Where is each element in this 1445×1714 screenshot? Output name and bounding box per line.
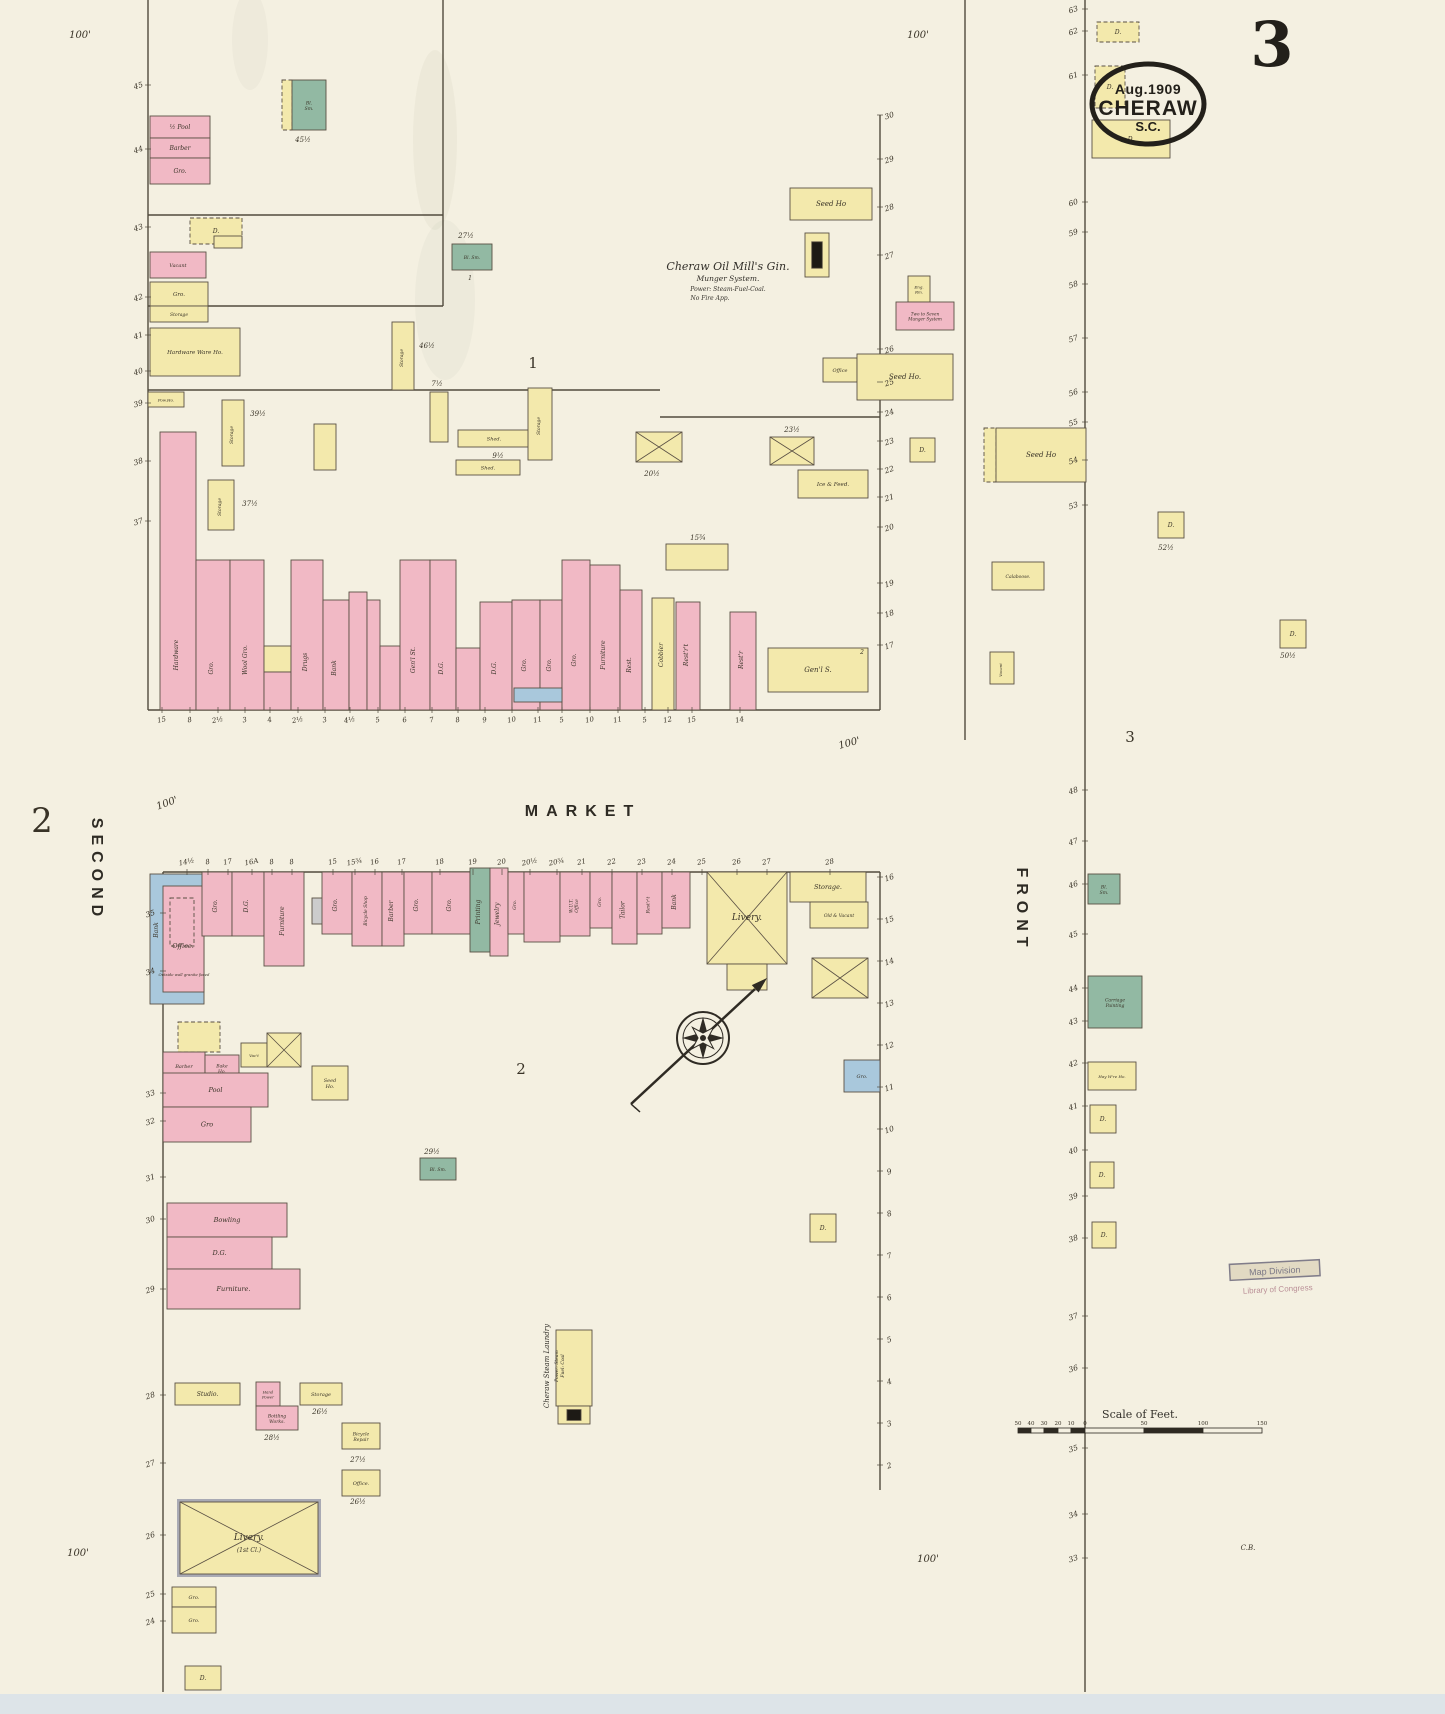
building-label: Gro.	[857, 1074, 868, 1080]
street-number: 17	[396, 857, 407, 867]
street-number: 44	[131, 144, 144, 156]
building	[666, 544, 728, 570]
building: Hardware Ware Ho.	[150, 328, 240, 376]
building: Gro.	[150, 282, 208, 306]
street-number: 12	[883, 1040, 895, 1052]
scale-title: Scale of Feet.	[1102, 1408, 1178, 1421]
street-number: 14	[734, 715, 744, 725]
street-number: 45	[1066, 929, 1079, 941]
street-number: 4	[266, 716, 273, 725]
street-number: 58	[1067, 279, 1079, 291]
building	[770, 437, 814, 465]
street-number: 57	[1067, 333, 1079, 345]
building-label: Bowling	[213, 1216, 241, 1224]
street-number: 28	[143, 1390, 156, 1402]
building: Shed.	[456, 460, 520, 475]
library-stamp: Map Division Library of Congress	[1229, 1260, 1321, 1297]
building-label: SeedHo.	[324, 1078, 337, 1090]
building-label: Cobbler	[658, 642, 665, 667]
building-label: Printing	[475, 899, 482, 925]
building-footprint	[323, 600, 349, 710]
logo-date: Aug.1909	[1115, 81, 1181, 97]
scale-tick-label: 50	[1141, 1421, 1148, 1427]
street-number: 33	[1067, 1553, 1079, 1565]
street-number: 18	[883, 608, 895, 620]
building: Two to SevenMunger System	[896, 302, 954, 330]
building: Gro.	[590, 872, 612, 928]
building: Studio.	[175, 1383, 240, 1405]
building: Rest'r't	[676, 602, 700, 710]
building-label: Tailor	[620, 900, 627, 919]
building: Hardware	[160, 432, 196, 710]
street-number: 6	[402, 716, 409, 725]
tank-or-boiler	[812, 242, 823, 268]
scan-edge	[0, 1694, 1445, 1714]
building-label: Gro.	[512, 900, 518, 910]
building-label: Rest'r't	[683, 643, 690, 667]
street-number: 33	[144, 1088, 156, 1100]
street-number: 23	[882, 436, 895, 448]
scale-tick-label: 0	[1083, 1421, 1087, 1427]
building: Old & Vacant	[810, 902, 868, 928]
street-number: 9	[482, 716, 489, 725]
street-number: 8	[886, 1209, 894, 1219]
street-number: 37	[132, 516, 144, 528]
building-label: Pow.Ho.	[157, 398, 174, 403]
street-number: 46	[1066, 879, 1079, 891]
building: Gro.	[172, 1587, 216, 1607]
building-label: Jewelry	[494, 902, 501, 927]
building: Pool	[163, 1073, 268, 1107]
street-number: 8	[289, 858, 296, 867]
building	[805, 233, 829, 277]
building-label: Storage	[170, 312, 188, 318]
map-annotation: 2	[516, 1060, 526, 1078]
map-annotation: 52½	[1158, 544, 1174, 552]
street-number: 19	[467, 857, 478, 867]
street-number: 8	[187, 716, 194, 725]
building-label: Seed Ho.	[889, 373, 921, 381]
building-label: Drugs	[302, 653, 309, 672]
building: Furniture	[264, 872, 304, 966]
building-label: Bl. Sm.	[429, 1167, 447, 1173]
building: Gro.	[432, 872, 470, 934]
building: Storage	[528, 388, 552, 460]
building: Vacant	[150, 252, 206, 278]
building: Bank	[662, 872, 690, 928]
street-number: 5	[375, 716, 382, 725]
building: Gen'l St.	[400, 560, 430, 710]
building: Office.	[342, 1470, 380, 1496]
street-number: 30	[883, 110, 895, 122]
street-number: 45	[131, 80, 144, 92]
street-number: 11	[612, 715, 622, 725]
stamp-line2: Library of Congress	[1243, 1283, 1313, 1296]
street-number: 4	[885, 1377, 893, 1387]
scale-tick-label: 10	[1068, 1421, 1075, 1427]
map-annotation: 100'	[837, 735, 861, 751]
building-label: D.	[918, 447, 926, 454]
building: Storage	[208, 480, 234, 530]
building-label: Gen'l S.	[804, 666, 831, 674]
street-number: 41	[131, 330, 144, 342]
building: Seed Ho.	[857, 354, 953, 400]
street-number: 15	[883, 914, 895, 926]
street-number: 14½	[178, 856, 195, 867]
building-label: Hay W're Ho.	[1097, 1074, 1125, 1079]
street-number: 40	[1066, 1145, 1079, 1157]
building: Office	[823, 358, 857, 382]
street-and-lot-lines	[148, 0, 1085, 1692]
building-label: Hardware Ware Ho.	[166, 350, 223, 356]
street-number: 2	[885, 1461, 893, 1471]
building-label: Storage.	[814, 883, 842, 891]
scale-bar-segment	[1044, 1428, 1058, 1433]
street-number: 30	[144, 1214, 156, 1226]
building-label: Gro.	[546, 658, 553, 671]
building: D.	[810, 1214, 836, 1242]
building-label: W.U.T.Office	[568, 899, 580, 913]
street-number: 10	[584, 715, 595, 725]
map-annotation: 1	[528, 354, 538, 372]
building-footprint	[264, 672, 291, 710]
street-number: 10	[883, 1124, 895, 1136]
scale-tick-label: 20	[1055, 1421, 1062, 1427]
street-number: 48	[1066, 785, 1079, 797]
scale-bar-segment	[1144, 1428, 1203, 1433]
building-label: Gro.	[208, 661, 215, 674]
street-number: 38	[1067, 1233, 1079, 1245]
street-number: 14	[883, 956, 895, 968]
building: D.G.	[167, 1237, 272, 1269]
map-annotation: 20½	[643, 470, 660, 478]
street-number: 25	[143, 1589, 156, 1601]
building: Gro.	[172, 1607, 216, 1633]
street-number: 44	[1066, 983, 1079, 995]
building-label: Storage	[311, 1392, 331, 1398]
building	[558, 1406, 590, 1424]
compass-rose-icon	[631, 978, 767, 1112]
building-footprint	[178, 1022, 220, 1052]
building: D.G.	[232, 872, 264, 936]
street-number: 8	[269, 858, 276, 867]
building-footprint	[524, 872, 560, 942]
svg-text:Cheraw Oil Mill's Gin.: Cheraw Oil Mill's Gin.	[666, 260, 789, 273]
street-number: 27	[882, 250, 895, 262]
building-footprint	[984, 428, 996, 482]
building-label: Storage	[399, 349, 405, 367]
building: Hay W're Ho.	[1088, 1062, 1136, 1090]
street-number: 4½	[342, 715, 356, 725]
svg-text:Fuel: Coal: Fuel: Coal	[560, 1354, 566, 1379]
building-footprint	[514, 688, 562, 702]
map-annotation: 26½	[311, 1408, 328, 1416]
map-annotation: 26½	[349, 1498, 366, 1506]
building: D.	[910, 438, 935, 462]
building-label: Storage	[229, 426, 235, 444]
building-label: Rest'r	[738, 650, 745, 670]
street-number: 15	[327, 857, 338, 867]
building-footprint	[562, 560, 590, 710]
building: SeedHo.	[312, 1066, 348, 1100]
building	[178, 1022, 220, 1052]
scale-bar-segment	[1018, 1428, 1031, 1433]
street-number: 22	[882, 464, 895, 476]
street-number: 42	[1066, 1058, 1079, 1070]
building: Ice & Feed.	[798, 470, 868, 498]
street-number: 3	[322, 716, 329, 725]
building-label: Studio.	[197, 1391, 219, 1398]
building-label: Hardware	[173, 639, 180, 671]
logo-state: S.C.	[1135, 119, 1160, 134]
scale-tick-label: 30	[1041, 1421, 1048, 1427]
building-label: Ice & Feed.	[816, 482, 849, 488]
building-label: D.	[1106, 84, 1114, 91]
building-label: Gro.	[173, 168, 186, 175]
building-label: D.	[1289, 631, 1297, 638]
building-label: Barber	[388, 899, 395, 922]
building-label: Gro.	[446, 898, 453, 911]
street-number: 39	[1067, 1191, 1079, 1203]
building: Gro.	[508, 872, 524, 934]
street-number: 60	[1067, 197, 1079, 209]
building-label: Gro.	[571, 653, 578, 666]
map-annotation: (1st Cl.)	[237, 1547, 262, 1554]
building-label: Storage	[217, 498, 223, 516]
building-label: Old & Vacant	[824, 913, 854, 919]
building-footprint	[196, 560, 230, 710]
building-footprint	[264, 646, 291, 672]
building: Bowling	[167, 1203, 287, 1237]
map-annotation: 100'	[907, 30, 929, 41]
street-number: 20	[882, 522, 895, 534]
building-label: D.	[1100, 1232, 1108, 1239]
street-number: 56	[1067, 387, 1079, 399]
map-annotation: 1	[468, 275, 472, 282]
sanborn-map-canvas: ½ PoolBarberGro.Bl.Sm.D.VacantGro.Storag…	[0, 0, 1445, 1714]
street-number: 3	[886, 1419, 894, 1429]
building	[812, 958, 868, 998]
street-number: 17	[222, 857, 233, 867]
street-number: 27	[143, 1458, 156, 1470]
building: Eng.Rm.	[908, 276, 930, 302]
building-label: BottlingWorks.	[267, 1413, 286, 1425]
building-label: D.	[1098, 1172, 1106, 1179]
street-number: 38	[132, 456, 144, 468]
building-label: D.	[212, 228, 220, 235]
map-annotation: 46½	[418, 342, 435, 350]
building-label: BicycleRepair	[352, 1431, 370, 1443]
building-label: Seed Ho	[1026, 451, 1056, 459]
building-label: Bank	[331, 660, 338, 677]
street-number: 2½	[210, 715, 224, 725]
building	[264, 646, 291, 672]
building-label: D.	[819, 1225, 827, 1232]
street-number: 11	[532, 715, 542, 725]
building: Gro.	[322, 872, 352, 934]
map-annotation: 3	[1125, 728, 1135, 746]
building	[524, 872, 560, 942]
street-number: 47	[1066, 836, 1079, 848]
street-number: 20¾	[547, 856, 565, 867]
svg-text:Cheraw Steam Laundry: Cheraw Steam Laundry	[543, 1323, 551, 1408]
street-name-front: FRONT	[1013, 867, 1030, 952]
map-annotation: 100'	[917, 1554, 939, 1565]
street-number: 20	[495, 857, 507, 867]
building-label: Furniture.	[216, 1285, 251, 1293]
street-number: 59	[1067, 227, 1079, 239]
svg-text:Munger System.: Munger System.	[696, 274, 760, 283]
building: D.G.	[480, 602, 512, 710]
building: CarriagePainting	[1088, 976, 1142, 1028]
building: HandPower	[256, 1382, 280, 1406]
building-footprint	[230, 560, 264, 710]
building-label: Gro.	[189, 1618, 200, 1624]
building: Bank	[323, 600, 349, 710]
street-number: 16	[883, 872, 895, 884]
street-number: 17	[883, 640, 895, 652]
building: Bl. Sm.	[420, 1158, 456, 1180]
building-label: Seed Ho	[816, 200, 846, 208]
sanborn-map-page: ½ PoolBarberGro.Bl.Sm.D.VacantGro.Storag…	[0, 0, 1445, 1714]
building: Vac't	[241, 1043, 267, 1067]
street-number: 8	[455, 716, 462, 725]
street-number: 5	[642, 716, 649, 725]
building: Gro.	[150, 158, 210, 184]
street-number: 37	[1067, 1311, 1079, 1323]
building	[514, 688, 562, 702]
building: Bicycle Shop	[352, 872, 382, 946]
building: Calaboose.	[992, 562, 1044, 590]
street-number: 15¾	[346, 856, 363, 867]
building-label: Calaboose.	[1006, 574, 1032, 580]
svg-text:Power: Steam: Power: Steam	[554, 1350, 560, 1383]
building-label: D.	[1099, 1116, 1107, 1123]
building-label: Vac't	[249, 1053, 259, 1058]
map-annotation: 100'	[155, 795, 179, 813]
building	[430, 392, 448, 442]
building: Bl.Sm.	[292, 80, 326, 130]
building-label: Pool	[207, 1086, 222, 1094]
building-label: Gro.	[173, 292, 185, 298]
street-number: 29	[882, 154, 895, 166]
street-number: 41	[1066, 1101, 1079, 1113]
building-label: Wool Gro.	[242, 645, 249, 675]
building: Furniture	[590, 565, 620, 710]
scale-bar-segment	[1085, 1428, 1144, 1433]
building-label: Shed.	[481, 466, 496, 472]
building-footprint	[590, 565, 620, 710]
street-number: 31	[144, 1172, 156, 1184]
building-label: Shed.	[487, 437, 502, 443]
building-label: Eng.Rm.	[913, 285, 923, 295]
street-number: 29	[143, 1284, 156, 1296]
building-label: D.G.	[211, 1249, 226, 1257]
building-label: Gro	[201, 1121, 213, 1129]
street-number: 26	[143, 1530, 156, 1542]
map-annotation: Outside wall granite faced	[159, 972, 210, 977]
building: Drugs	[291, 560, 323, 710]
scale-tick-label: 150	[1257, 1421, 1268, 1427]
street-number: 5	[886, 1335, 894, 1345]
building: D.	[1090, 1105, 1116, 1133]
street-number: 25	[695, 857, 707, 867]
building: Gro.	[844, 1060, 880, 1092]
building-label: Bicycle Shop	[363, 896, 369, 927]
building-label: HandPower	[261, 1390, 274, 1400]
building-label: Gen'l St.	[410, 647, 417, 673]
building-label: D.	[1114, 29, 1122, 36]
building-footprint	[456, 648, 480, 710]
building: W.U.T.Office	[560, 872, 590, 936]
map-annotation: 9½	[492, 452, 503, 460]
building	[214, 236, 242, 248]
map-annotation: Office.	[172, 942, 194, 950]
street-number: 42	[131, 292, 144, 304]
building	[380, 646, 400, 710]
building: D.	[1090, 1162, 1114, 1188]
street-number: 40	[131, 366, 144, 378]
building: Shed.	[458, 430, 530, 447]
building: Rest.	[620, 590, 642, 710]
map-annotation: 15¾	[690, 534, 706, 542]
map-annotation: 28½	[263, 1434, 280, 1442]
building: Jewelry	[490, 868, 508, 956]
street-number: 61	[1067, 70, 1079, 82]
building-footprint	[480, 602, 512, 710]
street-number: 18	[434, 857, 445, 867]
building-label: Gro.	[332, 898, 339, 911]
street-number: 24	[143, 1616, 156, 1628]
logo-city: CHERAW	[1098, 97, 1197, 120]
building: Gro.	[404, 872, 432, 934]
building-footprint	[349, 592, 367, 710]
paper-texture	[232, 0, 475, 380]
building-label: Two to SevenMunger System	[907, 311, 942, 321]
building	[349, 592, 367, 710]
building: Rest'r	[730, 612, 756, 710]
scale-tick-label: 50	[1015, 1421, 1022, 1427]
building: Gro.	[196, 560, 230, 710]
scale-bar-segment	[1058, 1428, 1071, 1433]
building: Vacant	[990, 652, 1014, 684]
free-labels-layer: 100'100'100'100'100'100'1223245½27½19½7½…	[31, 30, 1296, 1565]
building: Seed Ho	[996, 428, 1086, 482]
building: Gro	[163, 1107, 251, 1142]
building	[456, 648, 480, 710]
street-number: 62	[1067, 26, 1079, 38]
building-label: Storage	[536, 417, 542, 435]
street-number: 22	[605, 857, 617, 867]
building-label: D.	[1167, 522, 1175, 529]
map-annotation: 100'	[69, 30, 91, 41]
building-label: Bank	[671, 894, 678, 911]
building: Storage.	[790, 872, 866, 902]
svg-text:Power: Steam-Fuel-Coal.: Power: Steam-Fuel-Coal.	[689, 286, 765, 293]
building-label: Vacant	[169, 263, 187, 269]
building: Pow.Ho.	[148, 392, 184, 407]
building	[367, 600, 380, 710]
street-number: 28	[882, 202, 895, 214]
building: Bl. Sm.	[452, 244, 492, 270]
building-footprint	[282, 80, 292, 130]
map-annotation: 27½	[457, 232, 474, 240]
building: ½ Pool	[150, 116, 210, 138]
street-number: 8	[205, 858, 212, 867]
building-footprint	[314, 424, 336, 470]
map-annotation: 7½	[431, 380, 442, 388]
street-number: 27	[760, 857, 772, 867]
